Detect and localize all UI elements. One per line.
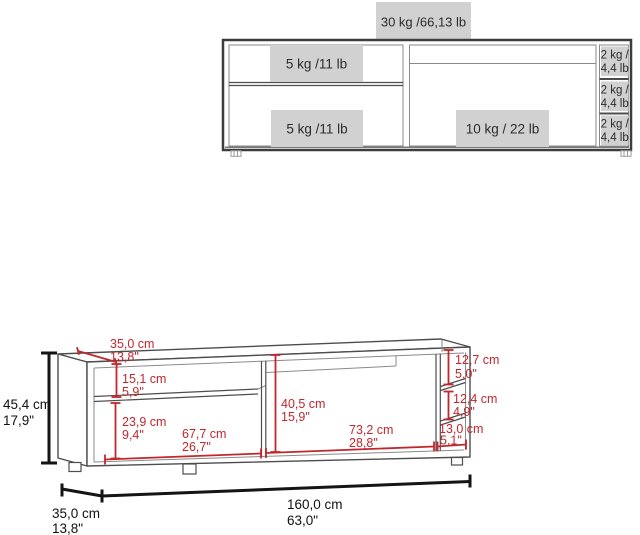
top-capacity-label: 30 kg /66,13 lb [381, 15, 466, 30]
cubby-middle-cm: 12,4 cm [453, 392, 497, 406]
overall-height-cm: 45,4 cm [3, 397, 51, 412]
lower-left-weight-label: 5 kg /11 lb [286, 122, 347, 137]
lower-opening-in: 9,4" [122, 428, 144, 442]
right-weight-label: 10 kg / 22 lb [466, 122, 540, 137]
top-depth-cm: 35,0 cm [110, 337, 154, 351]
cubby-top-cm: 12,7 cm [455, 353, 499, 367]
cubby-width-in: 5,1" [440, 434, 462, 448]
center-opening-height-cm: 40,5 cm [281, 397, 325, 411]
center-opening-height-in: 15,9" [281, 410, 310, 424]
lower-opening-cm: 23,9 cm [122, 415, 166, 429]
compartment-weight-box-2: 2 kg / 4,4 lb [601, 82, 630, 112]
upper-opening-cm: 15,1 cm [122, 372, 166, 386]
base-depth-in: 13,8" [52, 521, 83, 535]
compartment-kg-1: 2 kg / [601, 50, 630, 62]
front-view-feet [231, 151, 631, 157]
width-dimension-line [102, 475, 470, 497]
base-depth-cm: 35,0 cm [52, 506, 100, 521]
overall-height-in: 17,9" [3, 413, 34, 428]
center-opening-width-in: 28,8" [349, 436, 378, 450]
compartment-lb-2: 4,4 lb [601, 98, 629, 110]
foot-left [231, 151, 241, 157]
persp-foot-back-left [69, 463, 81, 472]
upper-left-weight-label: 5 kg /11 lb [286, 57, 347, 72]
center-opening-width-cm: 73,2 cm [349, 423, 393, 437]
compartment-weight-box-3: 2 kg / 4,4 lb [601, 116, 630, 146]
cubby-middle-in: 4,9" [453, 405, 475, 419]
overall-width-in: 63,0" [287, 513, 318, 528]
depth-dimension-line [62, 484, 102, 503]
perspective-view-dimension-diagram: 35,0 cm 13,8" 15,1 cm 5,9" 23,9 cm 9,4" … [3, 337, 499, 535]
cabinet-left-face [58, 354, 87, 466]
persp-foot-right [452, 458, 463, 466]
front-view-weight-diagram: 30 kg /66,13 lb 5 kg /11 lb 5 kg /11 lb … [223, 2, 631, 156]
top-depth-in: 13,8" [110, 350, 139, 364]
overall-width-cm: 160,0 cm [287, 497, 343, 512]
compartment-lb-1: 4,4 lb [601, 63, 629, 75]
upper-opening-in: 5,9" [122, 385, 144, 399]
compartment-weight-box-1: 2 kg / 4,4 lb [601, 47, 630, 77]
furniture-dimension-sheet: 30 kg /66,13 lb 5 kg /11 lb 5 kg /11 lb … [0, 0, 640, 535]
compartment-kg-3: 2 kg / [601, 119, 630, 131]
persp-foot-front-left [183, 464, 196, 474]
compartment-kg-2: 2 kg / [601, 85, 630, 97]
cubby-top-in: 5,0" [455, 367, 477, 381]
compartment-lb-3: 4,4 lb [601, 132, 629, 144]
left-opening-width-in: 26,7" [182, 440, 211, 454]
foot-right [621, 151, 631, 157]
left-opening-width-cm: 67,7 cm [182, 427, 226, 441]
diagram-svg: 30 kg /66,13 lb 5 kg /11 lb 5 kg /11 lb … [0, 0, 640, 535]
